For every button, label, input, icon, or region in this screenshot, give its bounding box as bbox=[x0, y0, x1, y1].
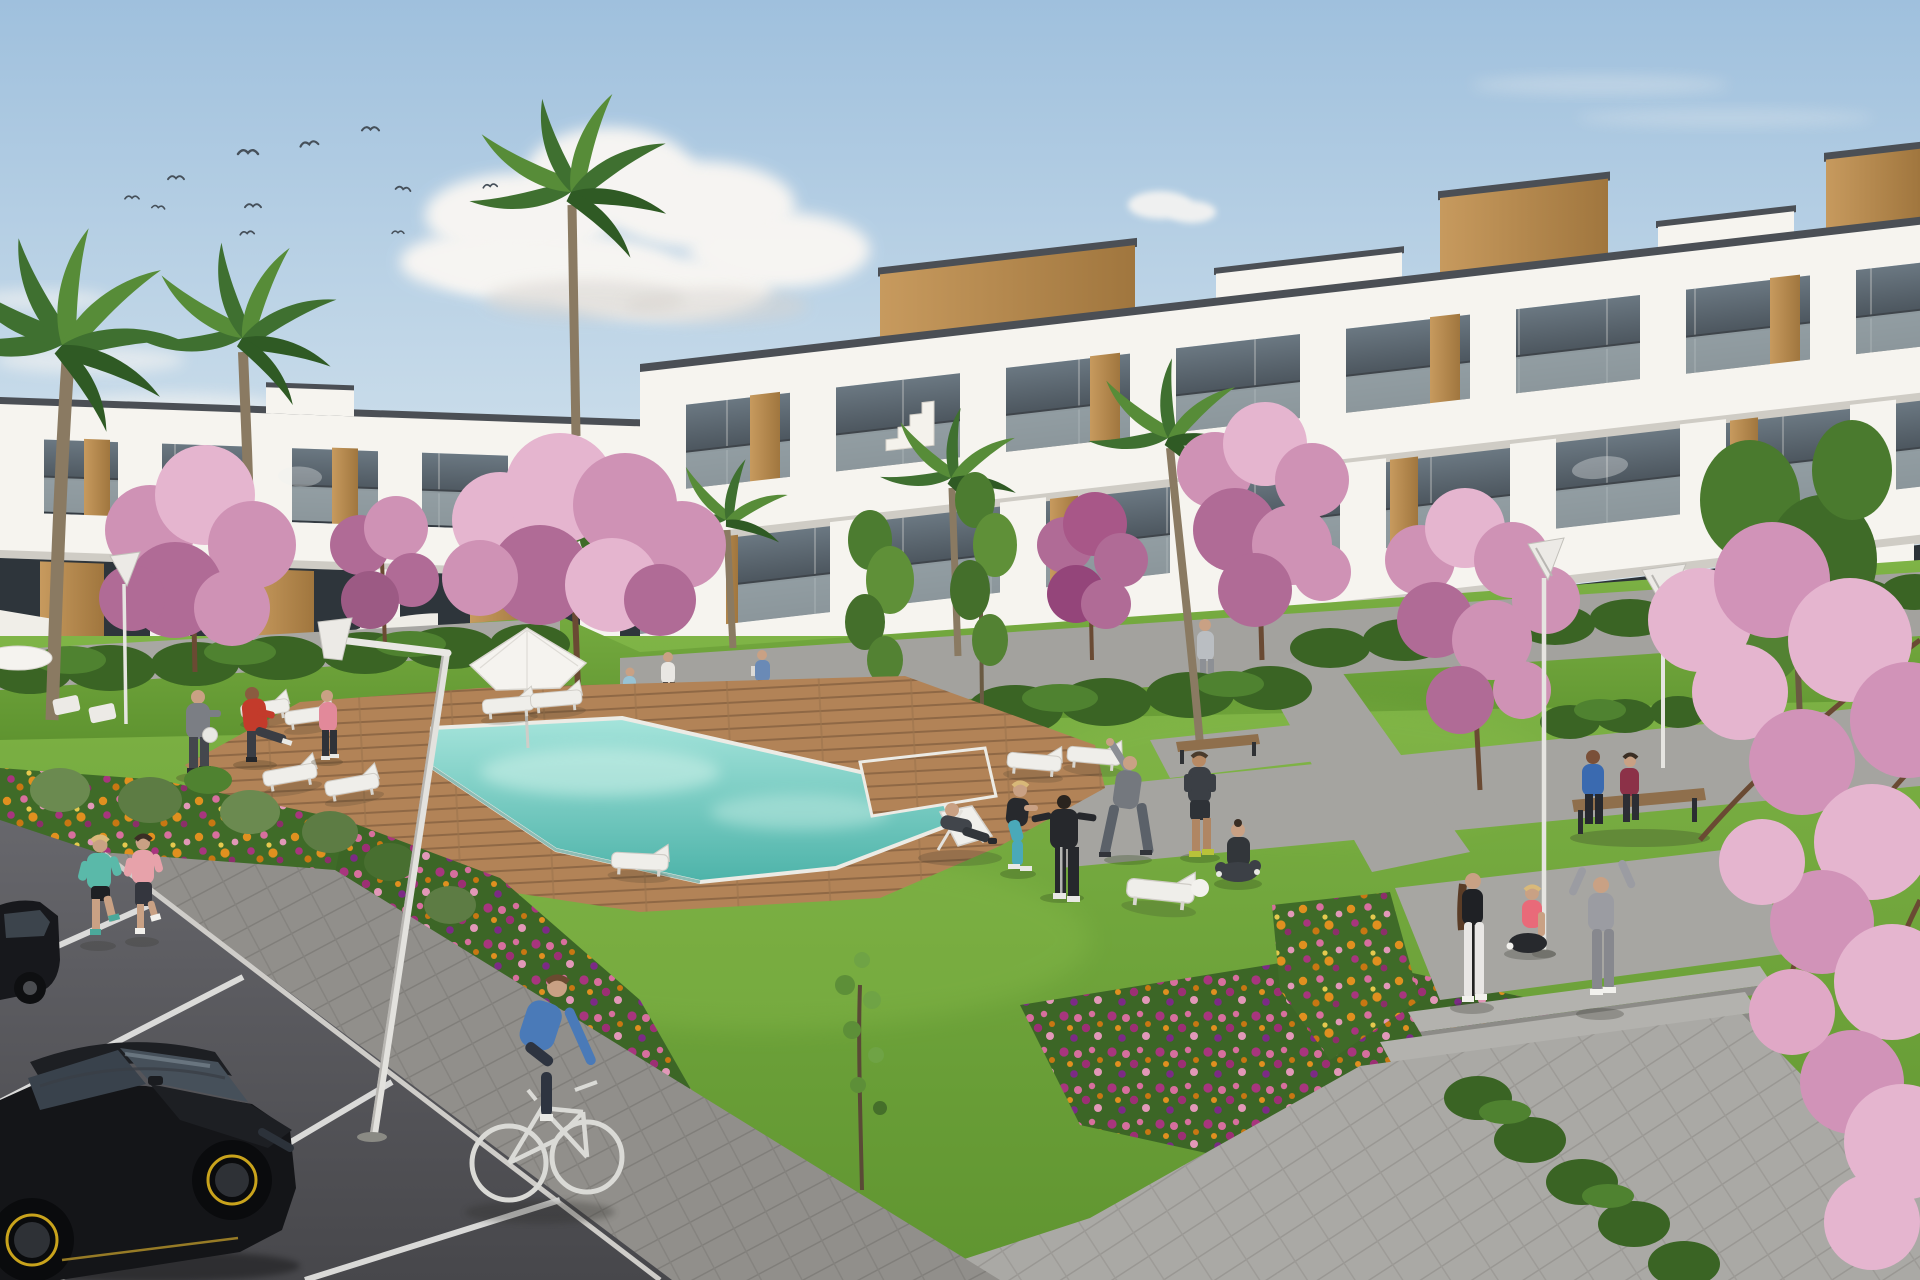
ball bbox=[203, 728, 218, 743]
architectural-render bbox=[0, 0, 1920, 1280]
